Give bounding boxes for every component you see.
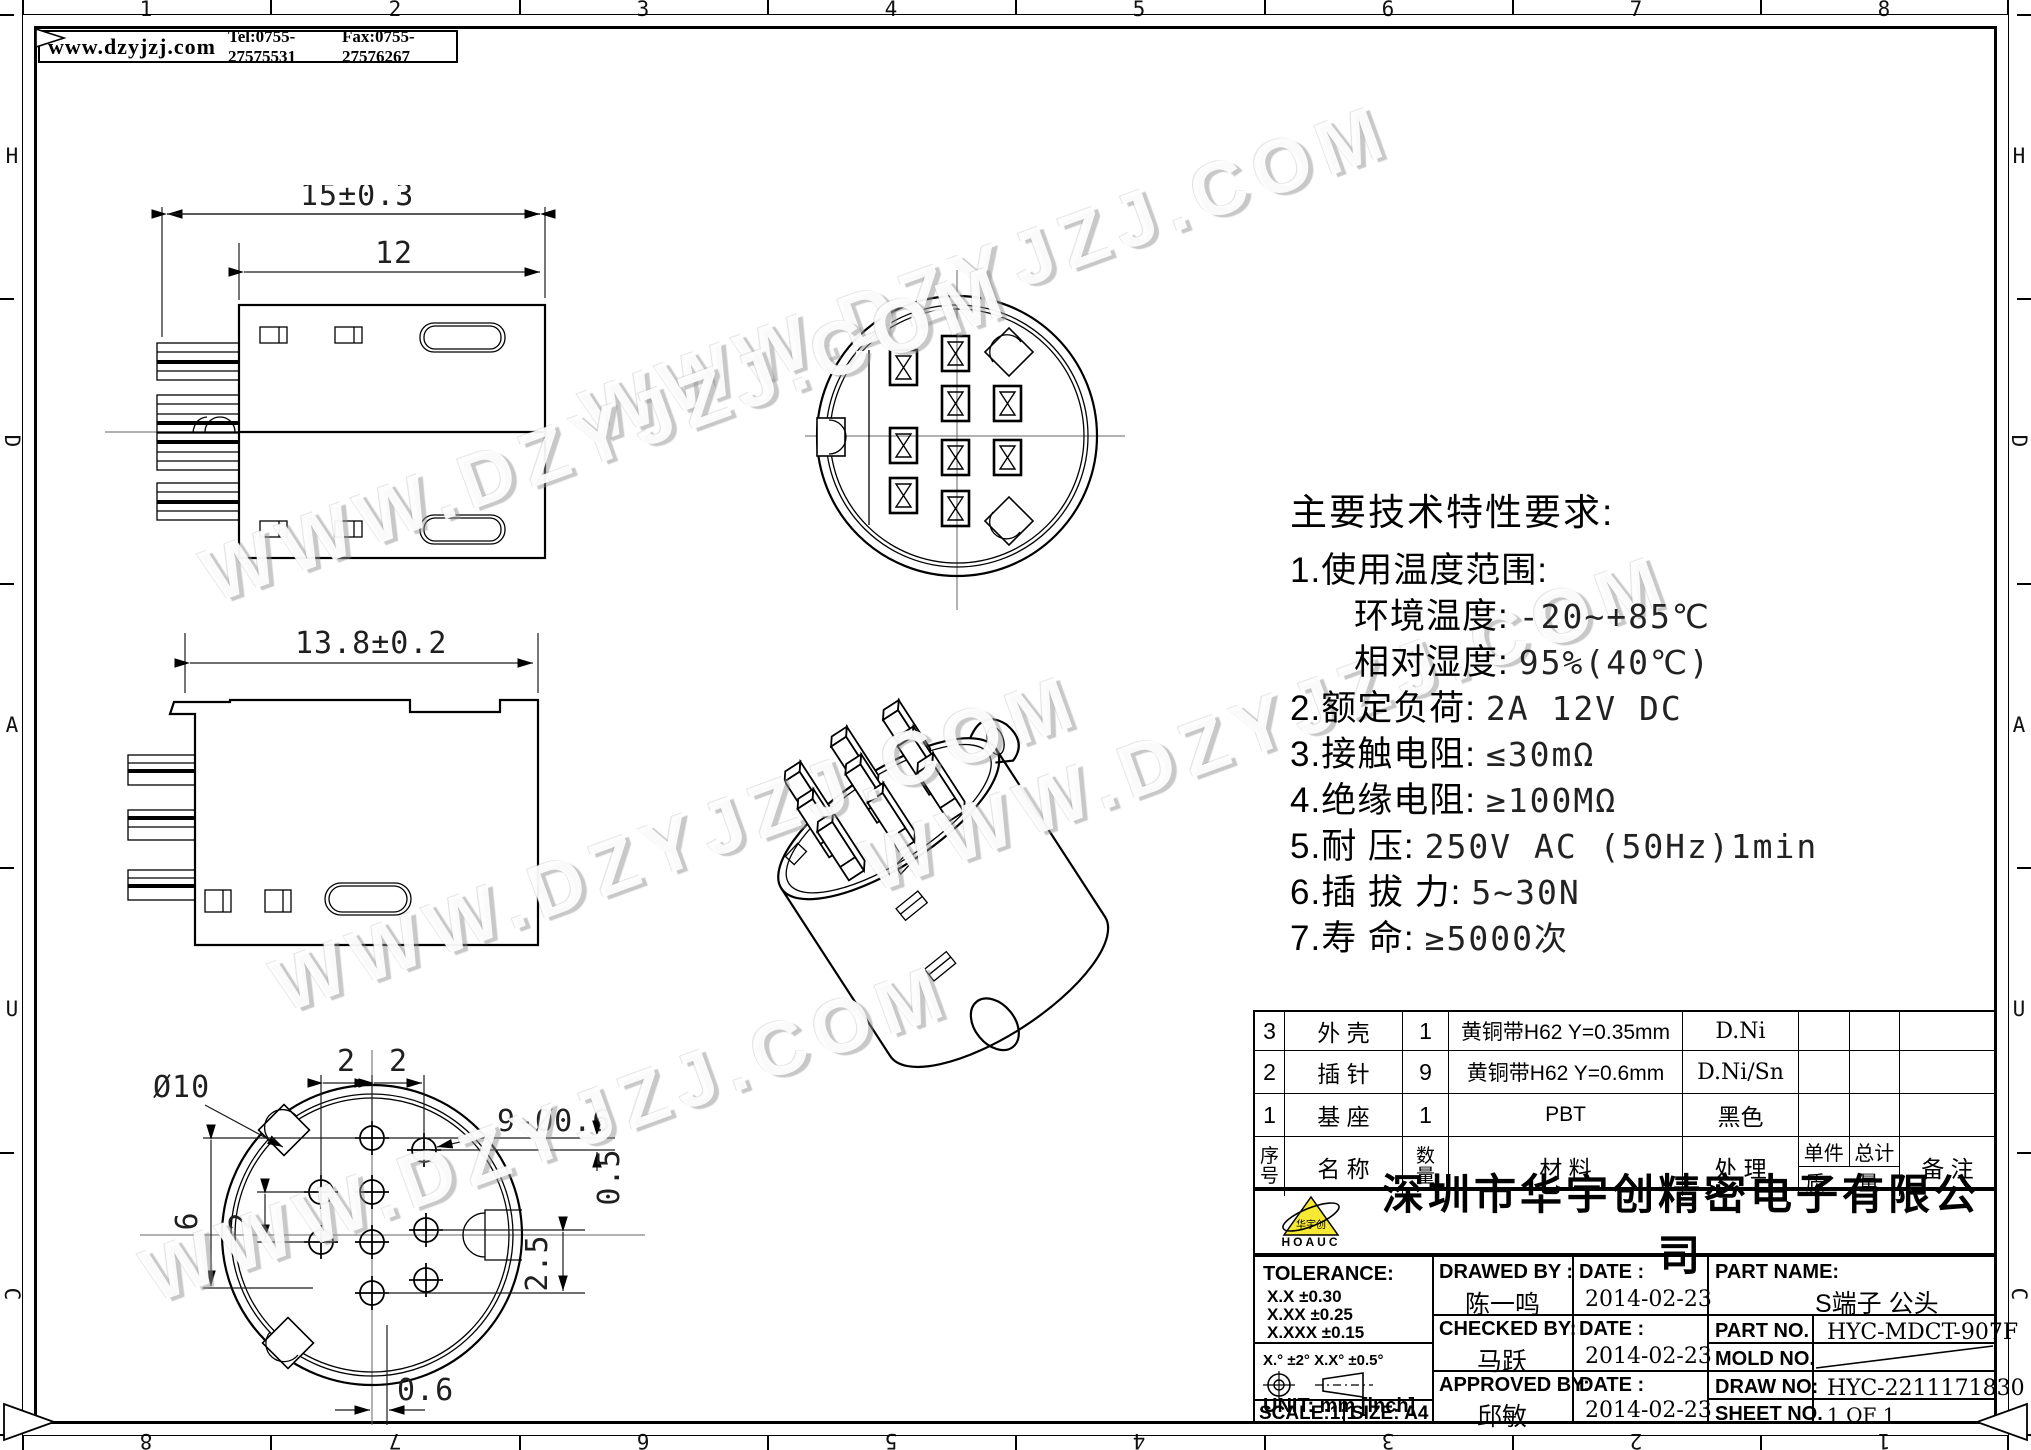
spec-label: 4.绝缘电阻: [1290,772,1476,823]
table-cell-qty: 1 [1403,1012,1449,1051]
sheet-no-value: 1 OF 1 [1827,1403,1895,1427]
ruler-letter-left: U [1,997,23,1021]
table-cell-qty: 1 [1403,1094,1449,1137]
spec-value: 250V AC (50Hz)1min [1425,827,1819,866]
spec-line: 5.耐 压:250V AC (50Hz)1min [1290,818,2000,864]
company-logo: 华宇创 HOAUC [1255,1191,1367,1253]
dim-label: Ø10 [153,1070,210,1105]
dim-label: 2 [337,1044,356,1079]
ruler-tick [519,0,521,14]
draw-no-label: DRAW NO: [1715,1376,1818,1399]
drawing-sheet: 1 2 3 4 5 6 7 8 8 7 6 5 4 3 2 1 H D A U … [0,0,2031,1450]
dim-label: 6 [170,1211,205,1230]
spec-line: 环境温度:-20~+85℃ [1290,588,2000,634]
spec-label: 相对湿度: [1354,634,1509,685]
rim-notch [985,497,1033,545]
logo-icon: 华宇创 [1276,1195,1346,1237]
dim-label: 2.5 [520,1234,555,1291]
ruler-letter-right: A [2008,713,2030,737]
view-circle-dimensioned: 2 2 Ø10 9-Ø0.6 6 2 0.5 2.5 0.6 [85,1025,665,1445]
table-cell-name: 基 座 [1285,1094,1403,1137]
spec-label: 环境温度: [1354,588,1509,639]
ruler-tick [2017,298,2031,300]
corner-mark-bottom-right [1969,1400,2029,1444]
table-cell-name: 外 壳 [1285,1012,1403,1051]
spec-line: 3.接触电阻:≤30mΩ [1290,726,2000,772]
table-cell-treatment: D.Ni/Sn [1683,1051,1799,1094]
hdr-seq-bot: 号 [1260,1167,1279,1187]
view-side-bottom: 13.8±0.2 [110,615,590,960]
view-3d-perspective [700,690,1160,1130]
ruler-tick [767,1436,769,1450]
ruler-letter-left: H [1,144,23,168]
part-no-value: HYC-MDCT-907F [1827,1320,2018,1345]
part-name-label: PART NAME: [1715,1261,1839,1284]
part-no-label: PART NO. [1715,1320,1809,1343]
table-cell-material: 黄铜带H62 Y=0.6mm [1449,1051,1683,1094]
ruler-tick [22,0,24,14]
dim-label: 0.6 [397,1373,454,1408]
spec-value: ≥100MΩ [1486,781,1617,820]
draw-no-value: HYC-2211171830 [1827,1376,2025,1401]
logo-mark-text: 华宇创 [1296,1218,1326,1231]
ruler-tick [2017,867,2031,869]
tolerance-title: TOLERANCE: [1263,1263,1394,1286]
mold-no-blank [1814,1344,1995,1370]
size-label: SIZE: A4 [1351,1403,1428,1425]
title-block: TOLERANCE: X.X ±0.30 X.XX ±0.25 X.XXX ±0… [1253,1255,1997,1424]
ruler-tick [2017,1152,2031,1154]
spec-block: 主要技术特性要求: 1.使用温度范围: 环境温度:-20~+85℃ 相对湿度:9… [1290,482,2000,956]
spec-label: 6.插 拔 力: [1290,864,1461,915]
table-cell-material: PBT [1449,1094,1683,1137]
ruler-tick [1015,1436,1017,1450]
logo-text: HOAUC [1282,1235,1341,1249]
sheet-no-label: SHEET NO. [1715,1403,1823,1426]
scale-label: SCALE:1:1 [1259,1403,1357,1425]
table-cell-unit [1799,1012,1850,1051]
spec-title: 主要技术特性要求: [1290,482,2000,536]
table-header-seq: 序号 [1255,1137,1285,1196]
table-cell-remark [1900,1051,1995,1094]
table-cell-remark [1900,1094,1995,1137]
ruler-letter-right: C [2007,1283,2031,1305]
ruler-tick [1264,1436,1266,1450]
spec-line: 相对湿度:95%(40℃) [1290,634,2000,680]
approved-date: 2014-02-23 [1585,1398,1712,1423]
tolerance-angles: X.° ±2° X.X° ±0.5° [1263,1352,1384,1369]
ruler-letter-left: D [0,430,24,452]
table-cell-total [1850,1051,1900,1094]
ruler-letter-left: A [1,713,23,737]
fax-text: Fax:0755-27576267 [342,27,448,67]
ruler-letter-left: C [0,1283,24,1305]
table-cell-remark [1900,1012,1995,1051]
table-cell-total [1850,1094,1900,1137]
drawed-by-name: 陈一鸣 [1465,1285,1540,1321]
corner-mark-bottom-left [2,1400,62,1444]
date-label: DATE : [1579,1261,1644,1284]
view-circle-front [805,270,1125,610]
ruler-tick [2007,0,2009,14]
checked-by-label: CHECKED BY: [1439,1318,1576,1341]
spec-line: 4.绝缘电阻:≥100MΩ [1290,772,2000,818]
dim-label: 0.5 [592,1148,627,1205]
drawed-date: 2014-02-23 [1585,1287,1712,1312]
table-cell-seq: 1 [1255,1094,1285,1137]
dim-label: 2 [389,1044,408,1079]
tel-text: Tel:0755-27575531 [228,27,330,67]
spec-line: 7.寿 命:≥5000次 [1290,910,2000,956]
table-cell-material: 黄铜带H62 Y=0.35mm [1449,1012,1683,1051]
approved-by-name: 邱敏 [1477,1397,1527,1433]
table-cell-name: 插 针 [1285,1051,1403,1094]
table-cell-unit [1799,1051,1850,1094]
pin-row [128,755,195,900]
treatment-text: D.Ni [1715,1019,1765,1044]
table-cell-unit [1799,1094,1850,1137]
table-cell-total [1850,1012,1900,1051]
spec-line: 1.使用温度范围: [1290,542,2000,588]
ruler-tick [767,0,769,14]
date-label: DATE : [1579,1374,1644,1397]
drawed-by-label: DRAWED BY : [1439,1261,1573,1284]
ruler-tick [1512,1436,1514,1450]
spec-line: 2.额定负荷:2A 12V DC [1290,680,2000,726]
spec-label: 5.耐 压: [1290,818,1415,869]
dim-label: 15±0.3 [300,185,414,213]
spec-label: 2.额定负荷: [1290,680,1476,731]
ruler-tick [2017,583,2031,585]
ruler-tick [0,583,14,585]
ruler-tick [0,298,14,300]
pin-row [157,343,239,520]
ruler-tick [0,1152,14,1154]
ruler-tick [0,14,14,16]
ruler-tick [2017,14,2031,16]
table-cell-seq: 3 [1255,1012,1285,1051]
ruler-letter-right: U [2008,997,2030,1021]
spec-label: 1.使用温度范围: [1290,542,1548,593]
hdr-seq-top: 序 [1260,1147,1279,1167]
spec-label: 7.寿 命: [1290,910,1415,961]
table-cell-qty: 9 [1403,1051,1449,1094]
company-row: 华宇创 HOAUC 深圳市华宇创精密电子有限公司 [1253,1189,1997,1255]
rim-notch [817,418,845,456]
ruler-letter-right: D [2007,430,2031,452]
ruler-tick [270,0,272,14]
spec-value: ≥5000次 [1425,912,1569,960]
spec-value: 5~30N [1471,873,1580,912]
tolerance-row: X.XX ±0.25 [1267,1305,1353,1325]
treatment-text: D.Ni/Sn [1697,1060,1784,1085]
ruler-tick [1760,0,1762,14]
part-name-value: S端子 公头 [1815,1284,1939,1320]
spec-value: 2A 12V DC [1486,689,1683,728]
dim-label: 12 [375,236,413,271]
pin-pad [304,1121,443,1310]
ruler-tick [1512,0,1514,14]
dim-label: 9-Ø0.6 [497,1104,611,1139]
checked-date: 2014-02-23 [1585,1344,1712,1369]
spec-line: 6.插 拔 力:5~30N [1290,864,2000,910]
spec-label: 3.接触电阻: [1290,726,1476,777]
ruler-tick [1015,0,1017,14]
table-cell-treatment: 黑色 [1683,1094,1799,1137]
ruler-tick [1264,0,1266,14]
ruler-letter-right: H [2008,144,2030,168]
approved-by-label: APPROVED BY: [1439,1374,1590,1397]
mold-no-label: MOLD NO. [1715,1348,1815,1371]
view-side-top: 15±0.3 12 [105,185,575,580]
ruler-tick [1760,1436,1762,1450]
date-label: DATE : [1579,1318,1644,1341]
tolerance-row: X.X ±0.30 [1267,1287,1342,1307]
pin-blade [775,695,969,887]
spec-value: ≤30mΩ [1486,735,1595,774]
checked-by-name: 马跃 [1477,1342,1527,1378]
contact-header: www.dzyjzj.com Tel:0755-27575531 Fax:075… [38,30,458,63]
table-cell-treatment: D.Ni [1683,1012,1799,1051]
spec-value: 95%(40℃) [1519,643,1711,682]
ruler-tick [0,867,14,869]
spec-value: -20~+85℃ [1519,597,1711,636]
tolerance-row: X.XXX ±0.15 [1267,1323,1364,1343]
table-cell-seq: 2 [1255,1051,1285,1094]
dim-label: 13.8±0.2 [295,626,448,661]
dim-label: 2 [224,1211,259,1230]
corner-mark-top-left [34,26,74,52]
